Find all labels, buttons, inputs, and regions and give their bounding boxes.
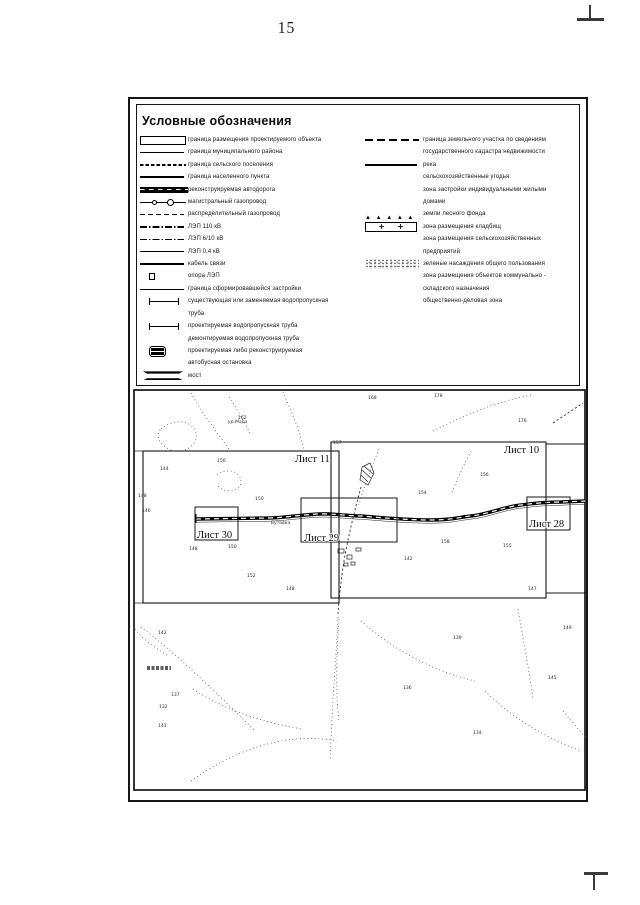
legend-item: мост bbox=[140, 370, 364, 382]
legend-column-right: граница земельного участка по сведениям … bbox=[365, 134, 578, 308]
elevation-mark: 155 bbox=[503, 543, 512, 549]
cemetery-symbol bbox=[365, 221, 423, 233]
elevation-mark: 154 bbox=[418, 490, 427, 496]
legend-item: демонтируемая водопропускная труба bbox=[140, 333, 364, 345]
none-symbol bbox=[365, 270, 423, 282]
registration-mark-bottom-right-bar bbox=[584, 872, 608, 875]
legend-item: зона размещения кладбищ bbox=[365, 221, 578, 233]
toponym-label: Бутовка bbox=[271, 520, 290, 526]
page-number: 15 bbox=[278, 18, 295, 38]
building-marks bbox=[338, 548, 361, 566]
elevation-mark: 145 bbox=[548, 675, 557, 681]
toponym-labels-layer: ур.МараБутовка bbox=[227, 419, 290, 526]
greenery-symbol bbox=[365, 258, 423, 270]
legend-item-label: граница сформировавшейся застройки bbox=[188, 283, 301, 295]
line-dashdense-symbol bbox=[140, 159, 188, 171]
map-sheet-label: Лист 30 bbox=[197, 530, 232, 541]
gas-main-symbol bbox=[140, 196, 188, 208]
elevation-mark: 168 bbox=[368, 395, 377, 401]
sheet-edge-extension bbox=[134, 451, 143, 603]
legend-item: граница сельского поселения bbox=[140, 159, 364, 171]
line-thin-symbol bbox=[140, 246, 188, 258]
scanned-document-page: 15 Условные обозначения граница размещен… bbox=[0, 0, 640, 905]
legend-item: граница размещения проектируемого объект… bbox=[140, 134, 364, 146]
legend-item-label: мост bbox=[188, 370, 202, 382]
legend-item-label: проектируемая водопропускная труба bbox=[188, 320, 298, 332]
none-symbol bbox=[365, 184, 423, 196]
legend-item-label: существующая или заменяемая водопропускн… bbox=[188, 295, 328, 320]
line-cable-symbol bbox=[140, 258, 188, 270]
none-symbol bbox=[365, 295, 423, 307]
pylon-symbol bbox=[140, 270, 188, 282]
elevation-mark: 146 bbox=[142, 508, 151, 514]
elevation-mark: 150 bbox=[217, 458, 226, 464]
legend-item: граница муниципального района bbox=[140, 146, 364, 158]
legend-item: распределительный газопровод bbox=[140, 208, 364, 220]
map-area: Лист 11Лист 10Лист 30Лист 29Лист 28 1501… bbox=[133, 389, 586, 791]
legend-item: ЛЭП 110 кВ bbox=[140, 221, 364, 233]
line-dashdot-symbol bbox=[140, 233, 188, 245]
none-symbol bbox=[140, 333, 188, 345]
legend-item: магистральный газопровод bbox=[140, 196, 364, 208]
elevation-mark: 142 bbox=[404, 556, 413, 562]
line-thin-symbol bbox=[140, 283, 188, 295]
line-dashdot-symbol bbox=[140, 221, 188, 233]
legend-item-label: опора ЛЭП bbox=[188, 270, 220, 282]
elevation-mark: 141 bbox=[158, 723, 167, 729]
line-dashed-symbol bbox=[140, 208, 188, 220]
map-sheet bbox=[143, 451, 339, 603]
legend-item-label: ЛЭП 0,4 кВ bbox=[188, 246, 220, 258]
legend-item-label: зона размещения сельскохозяйственных пре… bbox=[423, 233, 541, 258]
line-bold-symbol bbox=[140, 171, 188, 183]
legend-item-label: граница муниципального района bbox=[188, 146, 282, 158]
registration-mark-top-right-bar bbox=[577, 18, 604, 21]
legend-item: общественно-деловая зона bbox=[365, 295, 578, 307]
legend-item-label: магистральный газопровод bbox=[188, 196, 266, 208]
legend-item-label: зеленые насаждения общего пользования bbox=[423, 258, 545, 270]
elevation-mark: 139 bbox=[453, 635, 462, 641]
legend-item: зона размещения объектов коммунально - с… bbox=[365, 270, 578, 295]
legend-item-label: ЛЭП 6/10 кВ bbox=[188, 233, 223, 245]
elevation-mark: 144 bbox=[160, 466, 169, 472]
line-thin-symbol bbox=[140, 146, 188, 158]
legend-item: земли лесного фонда bbox=[365, 208, 578, 220]
legend-item-label: зона застройки индивидуальными жилыми до… bbox=[423, 184, 546, 209]
legend-item-label: граница населенного пункта bbox=[188, 171, 270, 183]
legend-title: Условные обозначения bbox=[142, 114, 292, 128]
proj-rect-symbol bbox=[140, 134, 188, 146]
legend-item-label: реконструируемая автодорога bbox=[188, 184, 275, 196]
forest-symbol bbox=[365, 208, 423, 220]
elevation-mark: 150 bbox=[228, 544, 237, 550]
legend-box: Условные обозначения граница размещения … bbox=[136, 104, 580, 386]
legend-item-label: зона размещения объектов коммунально - с… bbox=[423, 270, 546, 295]
legend-item: проектируемая водопропускная труба bbox=[140, 320, 364, 332]
legend-item-label: ЛЭП 110 кВ bbox=[188, 221, 221, 233]
legend-item: граница населенного пункта bbox=[140, 171, 364, 183]
legend-item: сельскохозяйственные угодья bbox=[365, 171, 578, 183]
elevation-mark: 134 bbox=[473, 730, 482, 736]
legend-item-label: граница размещения проектируемого объект… bbox=[188, 134, 321, 146]
legend-item: зона застройки индивидуальными жилыми до… bbox=[365, 184, 578, 209]
registration-mark-bottom-right bbox=[593, 874, 595, 890]
elevation-mark: 142 bbox=[158, 630, 167, 636]
legend-item-label: проектируемая либо реконструируемая авто… bbox=[188, 345, 302, 370]
elevation-mark: 149 bbox=[563, 625, 572, 631]
elevation-mark: 148 bbox=[138, 493, 147, 499]
elevation-mark: 158 bbox=[441, 539, 450, 545]
legend-item: граница земельного участка по сведениям … bbox=[365, 134, 578, 159]
legend-item: опора ЛЭП bbox=[140, 270, 364, 282]
legend-item-label: общественно-деловая зона bbox=[423, 295, 502, 307]
legend-item: зеленые насаждения общего пользования bbox=[365, 258, 578, 270]
legend-item-label: зона размещения кладбищ bbox=[423, 221, 501, 233]
elevation-mark: 147 bbox=[528, 586, 537, 592]
legend-item-label: демонтируемая водопропускная труба bbox=[188, 333, 299, 345]
none-symbol bbox=[365, 233, 423, 245]
legend-item-label: кабель связи bbox=[188, 258, 226, 270]
legend-item: река bbox=[365, 159, 578, 171]
elevation-mark: 132 bbox=[159, 704, 168, 710]
elevation-mark: 152 bbox=[247, 573, 256, 579]
map-svg: Лист 11Лист 10Лист 30Лист 29Лист 28 1501… bbox=[133, 389, 586, 791]
legend-item-label: сельскохозяйственные угодья bbox=[423, 171, 509, 183]
legend-item-label: река bbox=[423, 159, 436, 171]
legend-item: существующая или заменяемая водопропускн… bbox=[140, 295, 364, 320]
map-sheet-label: Лист 29 bbox=[304, 533, 339, 544]
illegible-toponym-smudge bbox=[147, 666, 171, 670]
registration-mark-top-right bbox=[589, 5, 591, 19]
road-symbol bbox=[140, 184, 188, 196]
legend-column-left: граница размещения проектируемого объект… bbox=[140, 134, 364, 382]
map-sheet-label: Лист 10 bbox=[504, 445, 539, 456]
hatched-parcel bbox=[360, 463, 374, 485]
line-longdash-symbol bbox=[365, 134, 423, 146]
legend-item: проектируемая либо реконструируемая авто… bbox=[140, 345, 364, 370]
pipe-symbol bbox=[140, 320, 188, 332]
legend-item: зона размещения сельскохозяйственных пре… bbox=[365, 233, 578, 258]
elevation-mark: 156 bbox=[480, 472, 489, 478]
elevation-mark: 148 bbox=[286, 586, 295, 592]
elevation-mark: 137 bbox=[171, 692, 180, 698]
elevation-mark: 150 bbox=[255, 496, 264, 502]
bridge-symbol bbox=[140, 370, 188, 382]
elevation-mark: 178 bbox=[434, 393, 443, 399]
elevation-mark: 148 bbox=[189, 546, 198, 552]
legend-item-label: распределительный газопровод bbox=[188, 208, 280, 220]
map-sheet-label: Лист 28 bbox=[529, 519, 564, 530]
line-river-symbol bbox=[365, 159, 423, 171]
legend-item: кабель связи bbox=[140, 258, 364, 270]
elevation-mark: 157 bbox=[333, 440, 342, 446]
legend-item: реконструируемая автодорога bbox=[140, 184, 364, 196]
elevation-mark: 136 bbox=[403, 685, 412, 691]
legend-item-label: граница сельского поселения bbox=[188, 159, 273, 171]
legend-item: ЛЭП 0,4 кВ bbox=[140, 246, 364, 258]
elevation-mark: 176 bbox=[518, 418, 527, 424]
legend-item: ЛЭП 6/10 кВ bbox=[140, 233, 364, 245]
legend-item-label: граница земельного участка по сведениям … bbox=[423, 134, 546, 159]
map-sheet-label: Лист 11 bbox=[295, 454, 330, 465]
legend-item: граница сформировавшейся застройки bbox=[140, 283, 364, 295]
bus-symbol bbox=[140, 345, 188, 357]
none-symbol bbox=[365, 171, 423, 183]
toponym-label: ур.Мара bbox=[227, 419, 247, 425]
pipe-symbol bbox=[140, 295, 188, 307]
legend-item-label: земли лесного фонда bbox=[423, 208, 486, 220]
